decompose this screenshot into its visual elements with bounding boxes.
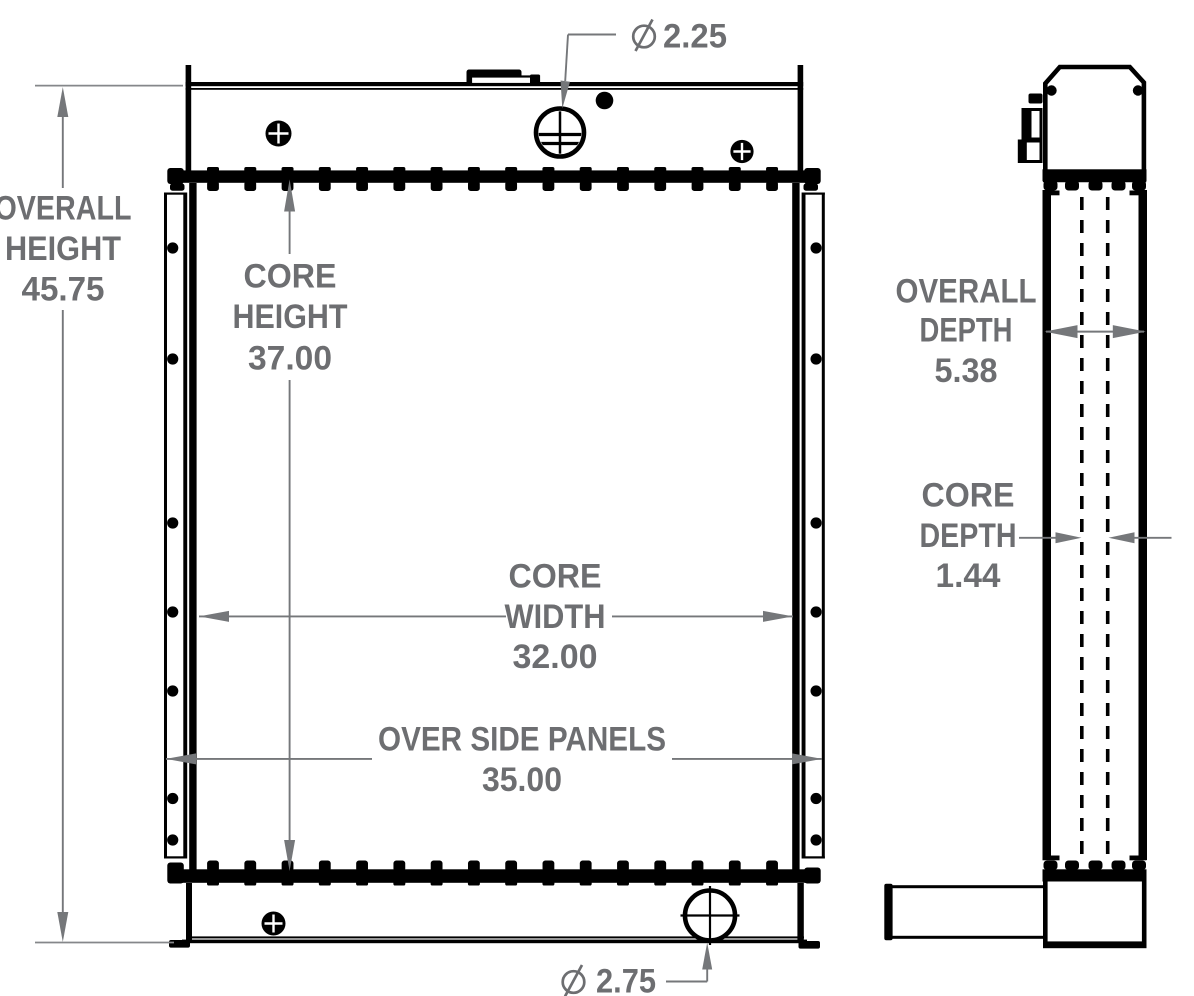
svg-text:1.44: 1.44 (936, 557, 1001, 595)
svg-text:WIDTH: WIDTH (505, 598, 606, 636)
svg-text:5.38: 5.38 (935, 352, 998, 390)
svg-text:HEIGHT: HEIGHT (5, 230, 121, 268)
svg-text:HEIGHT: HEIGHT (233, 298, 348, 336)
svg-text:CORE: CORE (509, 558, 602, 596)
svg-text:35.00: 35.00 (482, 761, 562, 799)
svg-text:OVERALL: OVERALL (896, 272, 1037, 310)
svg-text:2.75: 2.75 (596, 963, 656, 996)
svg-text:32.00: 32.00 (513, 638, 598, 676)
svg-text:OVER SIDE PANELS: OVER SIDE PANELS (378, 721, 666, 759)
svg-text:CORE: CORE (922, 477, 1015, 515)
svg-text:45.75: 45.75 (22, 271, 105, 309)
svg-text:2.25: 2.25 (663, 17, 727, 55)
svg-text:DEPTH: DEPTH (920, 517, 1017, 555)
svg-text:DEPTH: DEPTH (920, 312, 1013, 350)
svg-text:37.00: 37.00 (248, 340, 332, 378)
svg-text:CORE: CORE (244, 258, 337, 296)
svg-text:OVERALL: OVERALL (0, 190, 132, 228)
